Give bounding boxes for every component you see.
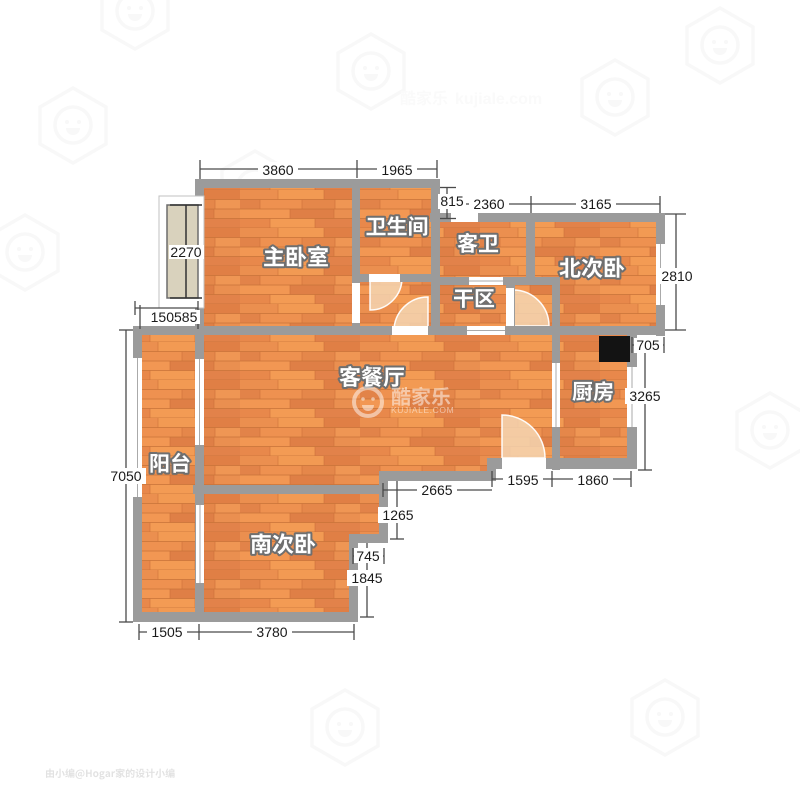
svg-text:2270: 2270 [170, 244, 201, 260]
svg-text:3265: 3265 [629, 388, 660, 404]
svg-text:1845: 1845 [351, 570, 382, 586]
svg-text:1965: 1965 [381, 162, 412, 178]
svg-text:3780: 3780 [256, 624, 287, 640]
svg-text:1265: 1265 [382, 507, 413, 523]
svg-text:3860: 3860 [262, 162, 293, 178]
svg-text:KUJIALE.COM: KUJIALE.COM [391, 405, 454, 415]
svg-text:3165: 3165 [580, 196, 611, 212]
svg-text:150585: 150585 [151, 309, 198, 325]
svg-text:705: 705 [636, 337, 660, 353]
svg-text:1505: 1505 [151, 624, 182, 640]
svg-text:815: 815 [440, 193, 464, 209]
svg-text:2665: 2665 [421, 482, 452, 498]
svg-text:1860: 1860 [577, 472, 608, 488]
svg-text:1595: 1595 [507, 472, 538, 488]
svg-text:kujiale.com: kujiale.com [455, 91, 542, 108]
svg-text:745: 745 [356, 548, 380, 564]
svg-text:7050: 7050 [110, 468, 141, 484]
svg-text:2810: 2810 [661, 268, 692, 284]
svg-text:2360: 2360 [473, 196, 504, 212]
